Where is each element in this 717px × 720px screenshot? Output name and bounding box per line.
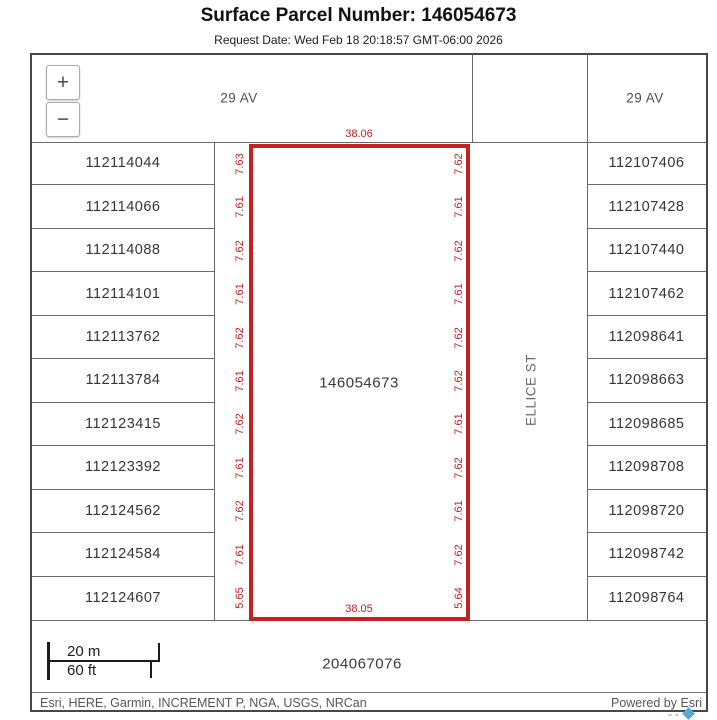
- dimension-label: 7.62: [453, 240, 465, 261]
- parcel-number: 112123415: [85, 416, 161, 432]
- parcel-number: 112114044: [86, 155, 161, 171]
- scalebar-baseline: [47, 660, 160, 662]
- parcel-cell-left[interactable]: 112114101: [32, 272, 214, 315]
- grid-line-street-edge: [472, 55, 473, 142]
- scalebar-metric-tick: [158, 643, 160, 662]
- parcel-number: 112124584: [85, 546, 161, 562]
- parcel-cell-right[interactable]: 112107406: [587, 142, 706, 185]
- dimension-label: 7.61: [453, 196, 465, 217]
- parcel-number: 112113784: [86, 372, 161, 388]
- parcel-number: 112114088: [86, 242, 161, 258]
- parcel-cell-right[interactable]: 112107428: [587, 185, 706, 228]
- dimension-label: 7.61: [234, 370, 246, 391]
- parcel-number: 112107440: [608, 242, 684, 258]
- map-frame[interactable]: + − 29 AV 29 AV ELLICE ST 11211404411211…: [30, 53, 708, 712]
- parcel-cell-left[interactable]: 112114066: [32, 185, 214, 228]
- dimension-label: 7.61: [453, 414, 465, 435]
- scalebar-metric-label: 20 m: [67, 643, 100, 660]
- parcel-number: 112123392: [85, 459, 161, 475]
- zoom-in-button[interactable]: +: [46, 65, 80, 100]
- grid-line-left-column: [214, 142, 215, 620]
- parcel-cell-left[interactable]: 112114044: [32, 142, 214, 185]
- dimension-label: 7.62: [234, 501, 246, 522]
- attribution-sources: Esri, HERE, Garmin, INCREMENT P, NGA, US…: [40, 696, 367, 710]
- parcel-cell-left[interactable]: 112123392: [32, 446, 214, 489]
- parcel-cell-right[interactable]: 112098663: [587, 359, 706, 402]
- parcel-number: 112098663: [608, 372, 684, 388]
- parcel-number: 112114101: [86, 286, 161, 302]
- dimension-label-bottom: 38.05: [345, 603, 373, 615]
- dimension-label: 7.62: [234, 414, 246, 435]
- parcel-cell-right[interactable]: 112098764: [587, 577, 706, 620]
- parcel-number: 112098742: [608, 546, 684, 562]
- zoom-out-button[interactable]: −: [46, 102, 80, 137]
- parcel-number: 112124562: [85, 503, 161, 519]
- parcel-cell-right[interactable]: 112098742: [587, 533, 706, 576]
- parcel-number: 112098685: [608, 416, 684, 432]
- page: Surface Parcel Number: 146054673 Request…: [0, 0, 717, 720]
- parcel-number: 112107462: [608, 286, 684, 302]
- dimension-label: 7.62: [234, 327, 246, 348]
- parcel-cell-left[interactable]: 112113762: [32, 316, 214, 359]
- dimension-label: 7.62: [234, 240, 246, 261]
- page-title: Surface Parcel Number: 146054673: [0, 5, 717, 27]
- parcel-cell-left[interactable]: 112123415: [32, 403, 214, 446]
- dimension-label: 7.62: [453, 153, 465, 174]
- parcel-number: 112107406: [608, 155, 684, 171]
- parcel-cell-right[interactable]: 112107440: [587, 229, 706, 272]
- zoom-control: + −: [46, 65, 80, 139]
- parcel-cell-right[interactable]: 112098720: [587, 490, 706, 533]
- esri-logo-dash-icon: [668, 714, 672, 716]
- parcel-cell-left[interactable]: 112124562: [32, 490, 214, 533]
- parcel-cell-right[interactable]: 112107462: [587, 272, 706, 315]
- dimension-label: 5.65: [234, 588, 246, 609]
- dimension-label: 7.61: [234, 544, 246, 565]
- dimension-label: 7.61: [234, 457, 246, 478]
- dimension-label-top: 38.06: [345, 128, 373, 140]
- scalebar-imperial-tick: [150, 661, 152, 678]
- attribution-bar: Esri, HERE, Garmin, INCREMENT P, NGA, US…: [32, 693, 706, 710]
- parcel-cell-left[interactable]: 112124584: [32, 533, 214, 576]
- dimension-label: 5.64: [453, 588, 465, 609]
- request-date: Request Date: Wed Feb 18 20:18:57 GMT-06…: [0, 33, 717, 47]
- parcel-cell-left[interactable]: 112114088: [32, 229, 214, 272]
- parcel-cell-right[interactable]: 112098685: [587, 403, 706, 446]
- parcel-number: 112114066: [86, 199, 161, 215]
- street-label-29av-right: 29 AV: [626, 91, 664, 106]
- parcel-cell-left[interactable]: 112124607: [32, 577, 214, 620]
- dimension-label: 7.62: [453, 457, 465, 478]
- parcel-number: 112113762: [86, 329, 161, 345]
- parcel-cell-right[interactable]: 112098708: [587, 446, 706, 489]
- street-label-ellice-st: ELLICE ST: [524, 354, 539, 426]
- parcel-number: 112107428: [608, 199, 684, 215]
- parcel-cell-left[interactable]: 112113784: [32, 359, 214, 402]
- parcel-cell-right[interactable]: 112098641: [587, 316, 706, 359]
- dimension-label: 7.61: [234, 283, 246, 304]
- dimension-label: 7.62: [453, 327, 465, 348]
- dimension-label: 7.63: [234, 153, 246, 174]
- esri-logo-dash-icon: [675, 714, 679, 716]
- dimension-label: 7.61: [453, 283, 465, 304]
- parcel-number: 112098641: [608, 329, 684, 345]
- dimension-label: 7.61: [234, 196, 246, 217]
- parcel-number: 112098764: [608, 590, 684, 606]
- parcel-number: 112124607: [85, 590, 161, 606]
- dimension-label: 7.62: [453, 370, 465, 391]
- dimension-label: 7.62: [453, 544, 465, 565]
- parcel-number: 112098708: [608, 459, 684, 475]
- scalebar-imperial-label: 60 ft: [67, 662, 96, 679]
- bottom-parcel-number: 204067076: [322, 656, 402, 673]
- highlighted-parcel-number: 146054673: [319, 375, 399, 392]
- dimension-label: 7.61: [453, 501, 465, 522]
- parcel-number: 112098720: [608, 503, 684, 519]
- street-label-29av-left: 29 AV: [220, 91, 258, 106]
